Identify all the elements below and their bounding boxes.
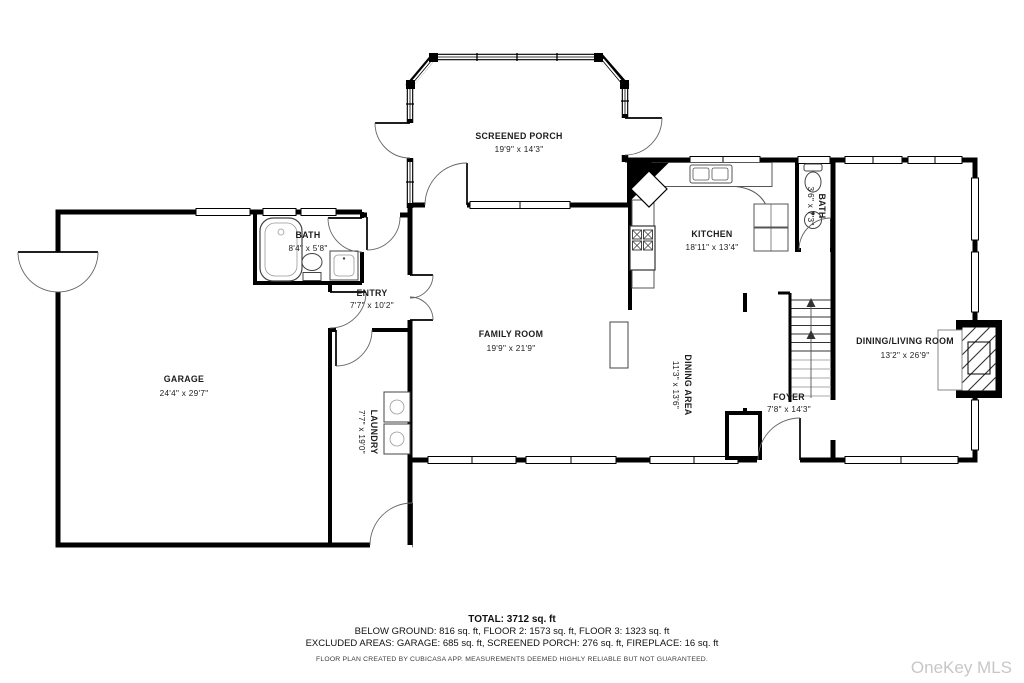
- svg-text:FAMILY ROOM: FAMILY ROOM: [479, 329, 543, 339]
- svg-text:3'6" x 7'3": 3'6" x 7'3": [806, 186, 815, 225]
- svg-text:BATH: BATH: [817, 194, 827, 219]
- staircase: [792, 298, 832, 398]
- svg-text:KITCHEN: KITCHEN: [691, 229, 732, 239]
- family-room-builtin: [610, 322, 628, 368]
- disclaimer-text: FLOOR PLAN CREATED BY CUBICASA APP. MEAS…: [0, 656, 1024, 663]
- svg-text:BATH: BATH: [296, 230, 321, 240]
- svg-text:7'7" x 10'2": 7'7" x 10'2": [350, 301, 394, 310]
- room-label-kitchen: KITCHEN 18'11" x 13'4": [685, 229, 738, 252]
- room-label-garage: GARAGE 24'4" x 29'7": [160, 374, 209, 398]
- laundry-fixtures: [384, 392, 410, 454]
- kitchen-sink-icon: [690, 165, 732, 183]
- svg-text:11'3" x 13'6": 11'3" x 13'6": [671, 361, 680, 409]
- svg-text:18'11" x 13'4": 18'11" x 13'4": [685, 243, 738, 252]
- room-label-family-room: FAMILY ROOM 19'9" x 21'9": [479, 329, 543, 353]
- svg-text:7'7" x 19'0": 7'7" x 19'0": [357, 410, 366, 454]
- room-label-screened-porch: SCREENED PORCH 19'9" x 14'3": [475, 131, 562, 154]
- svg-text:SCREENED PORCH: SCREENED PORCH: [475, 131, 562, 141]
- toilet-icon: [302, 254, 322, 271]
- svg-text:GARAGE: GARAGE: [164, 374, 204, 384]
- svg-text:FOYER: FOYER: [773, 392, 805, 402]
- fireplace-icon: [938, 320, 1002, 398]
- toilet-tank-icon: [804, 164, 822, 171]
- room-label-foyer: FOYER 7'8" x 14'3": [767, 392, 811, 414]
- svg-text:8'4" x 5'8": 8'4" x 5'8": [288, 244, 327, 253]
- onekey-mls-watermark: OneKey MLS: [911, 658, 1012, 678]
- total-area-text: TOTAL: 3712 sq. ft: [0, 614, 1024, 625]
- svg-text:13'2" x 26'9": 13'2" x 26'9": [881, 351, 930, 360]
- interior-walls: [253, 158, 835, 546]
- room-label-entry: ENTRY 7'7" x 10'2": [350, 288, 394, 310]
- excluded-areas-text: EXCLUDED AREAS: GARAGE: 685 sq. ft, SCRE…: [0, 638, 1024, 649]
- stove-icon: [630, 226, 655, 270]
- svg-text:DINING AREA: DINING AREA: [683, 354, 693, 415]
- foyer-closet: [727, 413, 760, 458]
- room-label-laundry: LAUNDRY 7'7" x 19'0": [357, 410, 379, 455]
- svg-text:19'9" x 21'9": 19'9" x 21'9": [487, 344, 536, 353]
- svg-text:7'8" x 14'3": 7'8" x 14'3": [767, 405, 811, 414]
- toilet-tank-icon: [303, 273, 321, 281]
- footer-area-summary: TOTAL: 3712 sq. ft BELOW GROUND: 816 sq.…: [0, 614, 1024, 663]
- floor-plan-canvas: SCREENED PORCH 19'9" x 14'3" KITCHEN 18'…: [0, 0, 1024, 610]
- svg-text:ENTRY: ENTRY: [357, 288, 388, 298]
- room-label-dining-area: DINING AREA 11'3" x 13'6": [671, 354, 693, 415]
- svg-text:DINING/LIVING ROOM: DINING/LIVING ROOM: [856, 336, 954, 346]
- svg-text:24'4" x 29'7": 24'4" x 29'7": [160, 389, 209, 398]
- svg-text:LAUNDRY: LAUNDRY: [369, 410, 379, 455]
- floor-areas-text: BELOW GROUND: 816 sq. ft, FLOOR 2: 1573 …: [0, 626, 1024, 637]
- svg-text:19'9" x 14'3": 19'9" x 14'3": [495, 145, 544, 154]
